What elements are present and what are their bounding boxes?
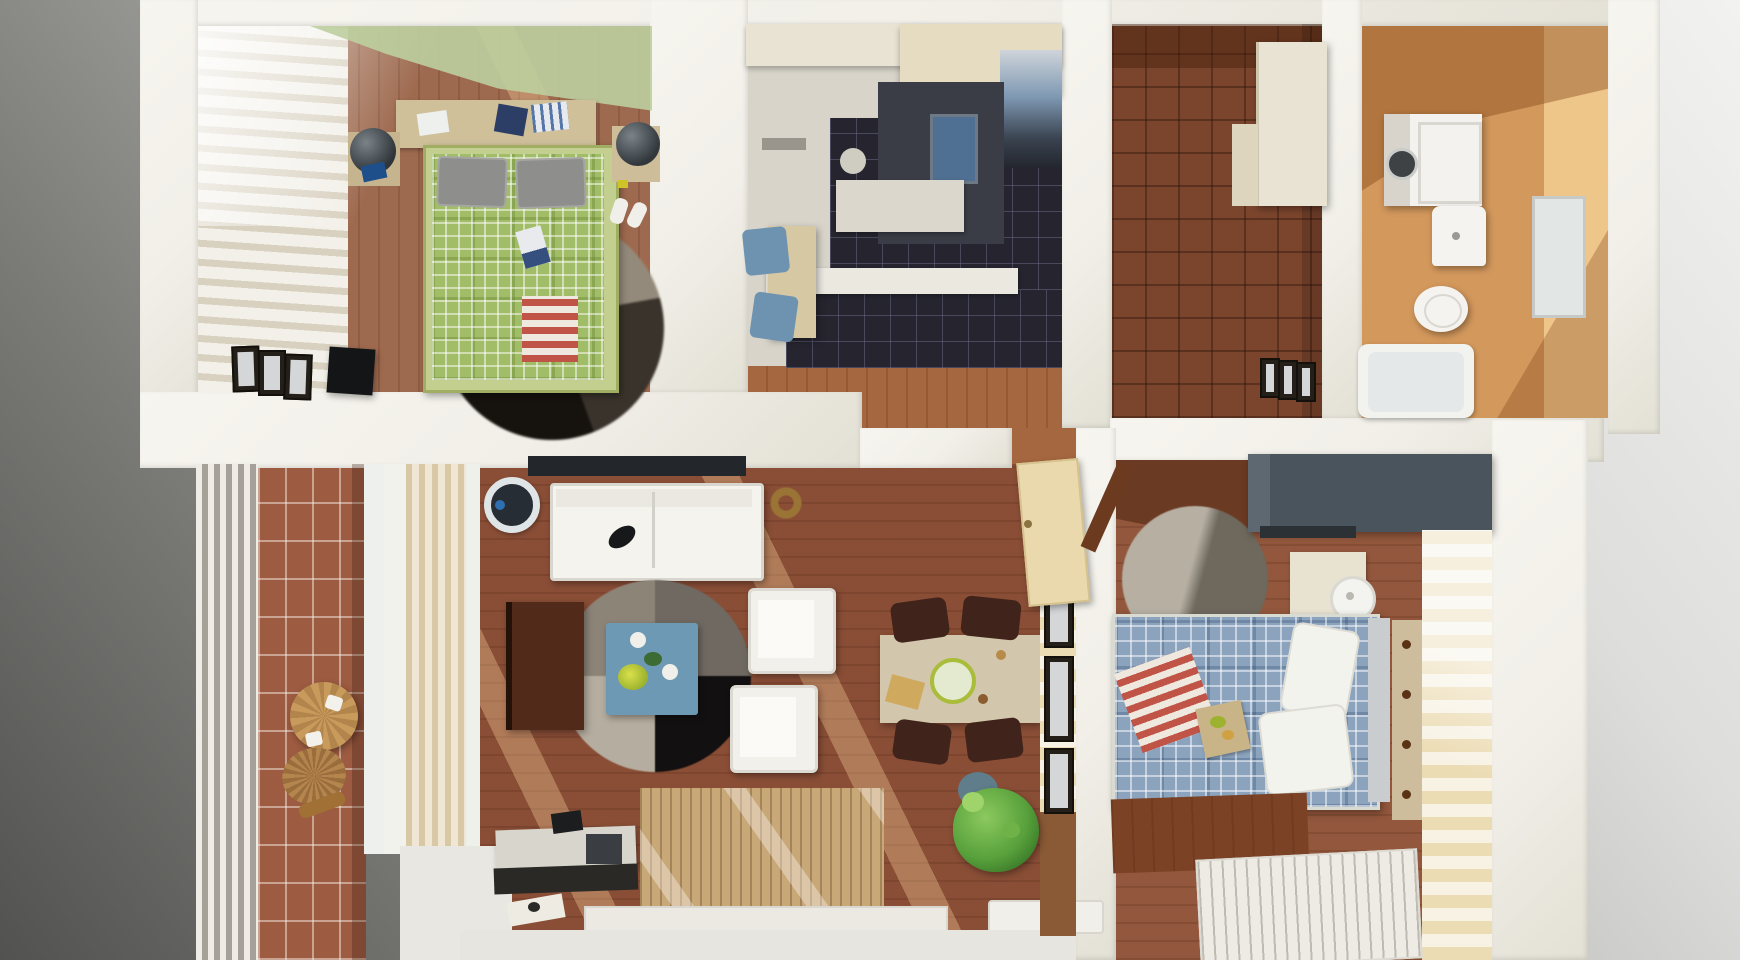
wall-bedroom1-kitchen [650,0,748,394]
bathtub-basin [1368,352,1464,412]
bed2-pillow-2 [1257,703,1355,797]
entry-wardrobe [1256,42,1327,206]
flower-leaves [644,652,662,666]
dining-chair-1 [889,596,950,643]
kitchen-wall-vent [762,138,806,150]
wall-mounted-tv [528,456,746,476]
brown-cabinet [506,602,584,730]
bedroom2-white-slatted-bench [1195,848,1422,960]
sofa-seam [652,492,655,568]
wall-right-outer-top [1608,0,1660,434]
living-curtain [406,464,466,858]
bed1-red-striped-throw [522,296,578,362]
living-bottom-sill [460,930,1076,960]
salad-plate [930,658,976,704]
entry-picture-frame-3 [1296,362,1316,402]
open-cream-door [1016,458,1090,607]
door-knob [1024,520,1032,528]
bed2-silver-rail [1368,618,1390,802]
shelf-papers [417,110,450,136]
armchair-1-seat [758,600,814,658]
wardrobe-under-shadow [1260,526,1356,538]
folded-socks [531,101,570,133]
folded-clothes [494,104,528,137]
dining-chair-3 [891,718,952,765]
fridge [1000,50,1062,168]
living-window-jamb [364,464,384,854]
entry-picture-frame-1 [1260,358,1280,398]
living-wall-strip-lower [1040,812,1076,936]
wall-corridor-south [860,428,1012,468]
bed1-pillow-left [436,156,508,208]
paper-ink-blot [528,902,540,912]
tray-food-2 [1222,730,1234,740]
wardrobe-side-face [1248,454,1270,532]
plant-leaf-highlight-1 [962,792,984,812]
kitchen-dark-tiles-bottom [786,290,1062,368]
bedroom1-picture-frame-2 [258,350,286,396]
bedroom2-dark-wardrobe [1248,454,1492,532]
living-window-glass [384,464,406,854]
bed1-pillow-right [515,157,587,209]
apartment-floorplan-render [0,0,1740,960]
dining-chair-2 [960,595,1022,641]
wall-right-outer-bottom [1492,420,1588,960]
drawer-knob-4 [1402,790,1411,799]
wall-top [140,0,1660,26]
bedroom1-picture-frame-3 [283,354,313,401]
armchair-2-seat [740,697,796,757]
wall-kitchen-entry [1062,0,1112,428]
bedroom2-wall-sunbeam [1422,530,1492,960]
bronze-wreath-decor [768,485,804,521]
living-window-inner-frame [466,464,480,858]
yellow-trinket [618,180,628,188]
balcony-round-table [290,682,358,750]
entry-picture-frame-2 [1278,360,1298,400]
sink-drain [1452,232,1460,240]
dark-tray [494,863,639,894]
desk-black-item [551,810,583,834]
kitchen-sink [930,114,978,184]
living-wall-frame-3 [1044,748,1074,814]
coffee-cup-1 [630,632,646,648]
yellow-flowers [618,664,648,690]
kitchen-stool [840,148,866,174]
entry-low-cabinet [1232,124,1258,206]
kitchen-blue-chair-2 [749,291,799,343]
dining-chair-4 [964,717,1024,764]
lamp-center-dot [1346,592,1354,600]
speaker-blue-accent [495,500,505,510]
round-speaker [484,477,540,533]
kitchen-prep-counter [836,180,964,232]
drawer-knob-3 [1402,740,1411,749]
washing-machine-door [1386,148,1418,180]
tray-food-1 [1210,716,1226,728]
drawer-knob-1 [1402,640,1411,649]
wall-entry-bathroom [1322,0,1362,420]
drawer-knob-2 [1402,690,1411,699]
black-speaker-box [326,346,375,395]
desk-monitor [586,834,622,864]
bed2-breakfast-tray [1195,700,1250,758]
living-wall-frame-2 [1044,656,1074,742]
bedroom1-picture-frame-1 [231,346,261,393]
dining-cup-2 [978,694,988,704]
coffee-cup-2 [662,664,678,680]
washing-machine-lid [1418,122,1482,204]
bathroom-mirror-cabinet [1532,196,1586,318]
toilet-seat [1424,294,1462,328]
plant-leaf-highlight-2 [1002,822,1020,838]
balcony-door-frame [584,906,948,932]
dining-cup-1 [996,650,1006,660]
balcony-railing [196,464,258,960]
kitchen-blue-chair-1 [742,226,791,276]
bedroom1-lamp-right [616,122,660,166]
